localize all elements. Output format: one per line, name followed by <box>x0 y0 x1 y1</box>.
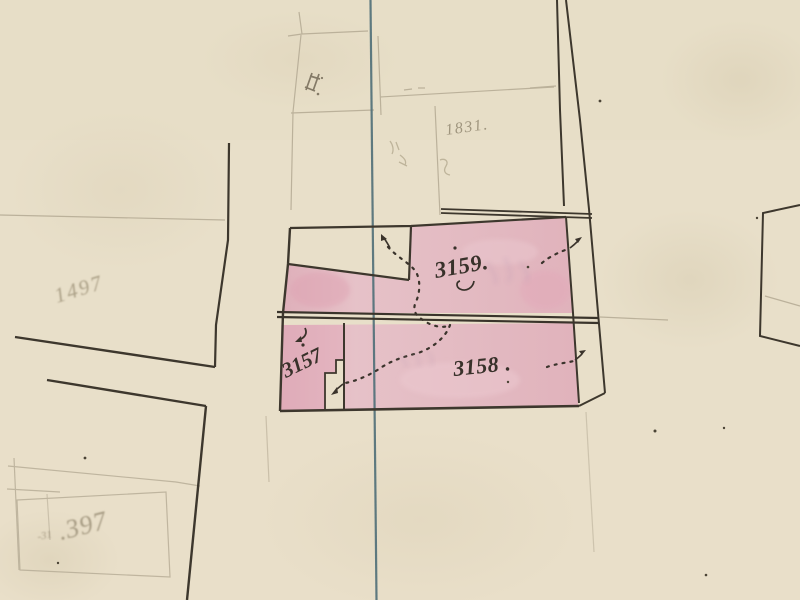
svg-text:-31: -31 <box>36 529 53 543</box>
